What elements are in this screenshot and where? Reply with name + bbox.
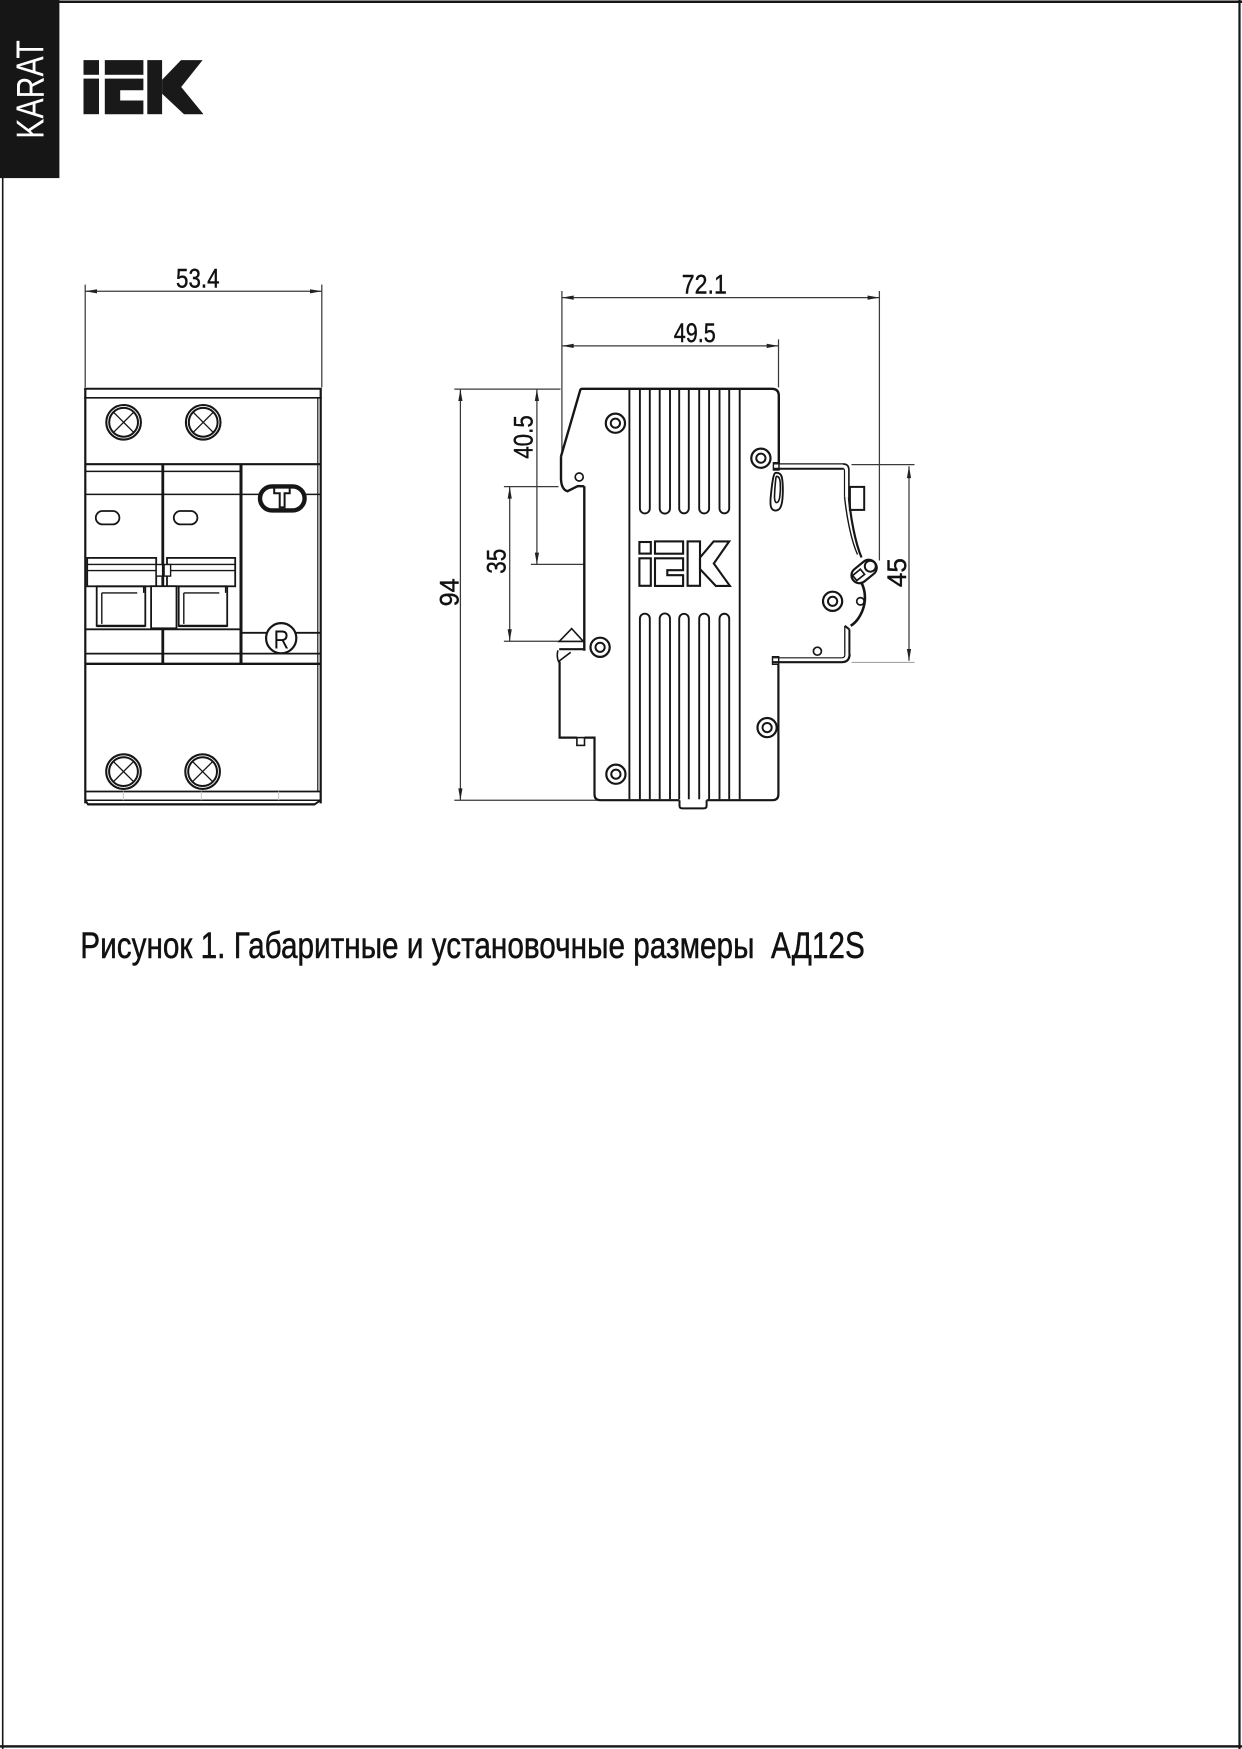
svg-text:40.5: 40.5: [509, 415, 539, 459]
svg-text:45: 45: [882, 558, 912, 587]
svg-text:49.5: 49.5: [674, 318, 716, 348]
svg-text:53.4: 53.4: [176, 264, 220, 294]
svg-text:35: 35: [482, 549, 512, 574]
svg-text:R: R: [274, 624, 290, 654]
svg-text:Рисунок 1. Габаритные и устано: Рисунок 1. Габаритные и установочные раз…: [80, 924, 865, 966]
svg-text:72.1: 72.1: [682, 269, 727, 299]
svg-text:KARAT: KARAT: [10, 40, 53, 139]
